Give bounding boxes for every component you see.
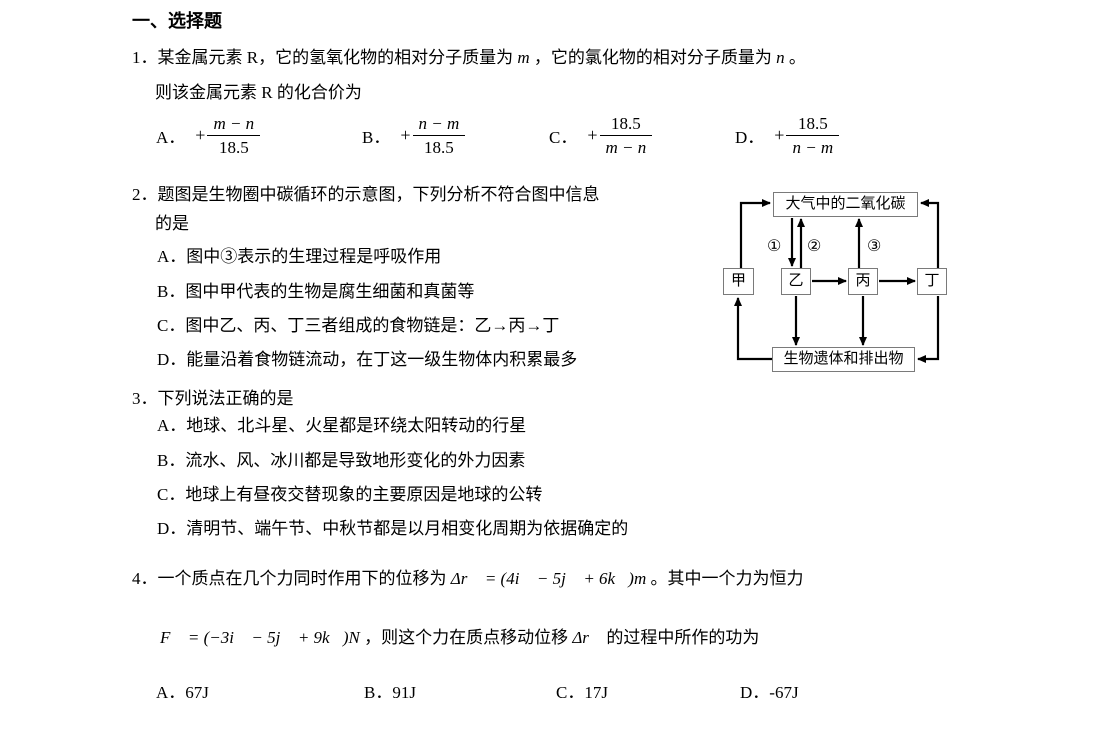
question-4-line-1: 4．一个质点在几个力同时作用下的位移为 Δr⃗ = (4i⃗ − 5j⃗ + 6… bbox=[132, 566, 804, 591]
diagram-box-ding: 丁 bbox=[917, 268, 947, 295]
option-label: A． bbox=[156, 123, 185, 148]
fraction-numerator: m − n bbox=[207, 112, 260, 136]
question-4-text-3: ，则这个力在质点移动位移 bbox=[360, 628, 573, 647]
fraction: 18.5 n − m bbox=[786, 112, 839, 159]
question-2-line-1: 2．题图是生物圈中碳循环的示意图，下列分析不符合图中信息 bbox=[132, 182, 600, 207]
q1-option-d: D． + 18.5 n − m bbox=[735, 112, 839, 159]
question-4-text-4: 的过程中所作的功为 bbox=[602, 628, 759, 647]
q4-option-d: D．-67J bbox=[740, 680, 799, 705]
var-m: m bbox=[517, 48, 529, 67]
q3-option-c: C．地球上有昼夜交替现象的主要原因是地球的公转 bbox=[157, 482, 542, 507]
diagram-label-3: ③ bbox=[867, 239, 881, 255]
displacement-formula: Δr⃗ = (4i⃗ − 5j⃗ + 6k⃗)m bbox=[451, 569, 647, 588]
question-1-line-2: 则该金属元素 R 的化合价为 bbox=[155, 80, 362, 105]
question-4-text-2: 。其中一个力为恒力 bbox=[646, 569, 803, 588]
question-3-stem: 3．下列说法正确的是 bbox=[132, 386, 294, 411]
fraction-numerator: 18.5 bbox=[600, 112, 653, 136]
q1-option-a: A． + m − n 18.5 bbox=[156, 112, 260, 159]
plus-sign: + bbox=[774, 125, 784, 146]
q4-option-b: B．91J bbox=[364, 680, 416, 705]
question-1-text-3: 。 bbox=[785, 48, 806, 67]
question-4-text: 一个质点在几个力同时作用下的位移为 bbox=[158, 569, 451, 588]
var-n: n bbox=[776, 48, 785, 67]
q3-option-b: B．流水、风、冰川都是导致地形变化的外力因素 bbox=[157, 448, 525, 473]
fraction: 18.5 m − n bbox=[600, 112, 653, 159]
question-1-text: 某金属元素 R，它的氢氧化物的相对分子质量为 bbox=[158, 48, 518, 67]
q2-option-b: B．图中甲代表的生物是腐生细菌和真菌等 bbox=[157, 279, 474, 304]
question-2-text: 题图是生物圈中碳循环的示意图，下列分析不符合图中信息 bbox=[158, 185, 600, 204]
plus-sign: + bbox=[195, 125, 205, 146]
section-heading: 一、选择题 bbox=[132, 9, 222, 34]
question-3-text: 下列说法正确的是 bbox=[158, 389, 294, 408]
q3-option-d: D．清明节、端午节、中秋节都是以月相变化周期为依据确定的 bbox=[157, 516, 628, 541]
question-1-text-2: ，它的氯化物的相对分子质量为 bbox=[530, 48, 777, 67]
question-2-line-2: 的是 bbox=[155, 211, 189, 236]
fraction-denominator: 18.5 bbox=[413, 136, 466, 159]
diagram-label-1: ① bbox=[767, 239, 781, 255]
q3-option-a: A．地球、北斗星、火星都是环绕太阳转动的行星 bbox=[157, 413, 526, 438]
displacement-symbol: Δr⃗ bbox=[572, 628, 602, 647]
q1-option-c: C． + 18.5 m − n bbox=[549, 112, 652, 159]
diagram-label-2: ② bbox=[807, 239, 821, 255]
q1-option-b: B． + n − m 18.5 bbox=[362, 112, 465, 159]
diagram-box-yi: 乙 bbox=[781, 268, 811, 295]
option-label: B． bbox=[362, 123, 390, 148]
question-4-number: 4． bbox=[132, 569, 158, 588]
fraction-denominator: n − m bbox=[786, 136, 839, 159]
plus-sign: + bbox=[587, 125, 597, 146]
question-4-line-2: F⃗ = (−3i⃗ − 5j⃗ + 9k⃗)N ，则这个力在质点移动位移 Δr… bbox=[160, 625, 759, 650]
question-2-number: 2． bbox=[132, 185, 158, 204]
q2-option-c: C．图中乙、丙、丁三者组成的食物链是：乙→丙→丁 bbox=[157, 313, 559, 338]
diagram-box-atmospheric-co2: 大气中的二氧化碳 bbox=[773, 192, 918, 217]
q4-option-c: C．17J bbox=[556, 680, 608, 705]
q2-option-a: A．图中③表示的生理过程是呼吸作用 bbox=[157, 244, 441, 269]
fraction-denominator: m − n bbox=[600, 136, 653, 159]
exam-page: 一、选择题 1．某金属元素 R，它的氢氧化物的相对分子质量为 m ，它的氯化物的… bbox=[0, 0, 1119, 742]
q4-option-a: A．67J bbox=[156, 680, 209, 705]
diagram-box-jia: 甲 bbox=[723, 268, 754, 295]
question-1-line-1: 1．某金属元素 R，它的氢氧化物的相对分子质量为 m ，它的氯化物的相对分子质量… bbox=[132, 45, 806, 70]
fraction: n − m 18.5 bbox=[413, 112, 466, 159]
q2-option-d: D．能量沿着食物链流动，在丁这一级生物体内积累最多 bbox=[157, 347, 577, 372]
option-label: C． bbox=[549, 123, 577, 148]
fraction-numerator: n − m bbox=[413, 112, 466, 136]
question-3-number: 3． bbox=[132, 389, 158, 408]
option-label: D． bbox=[735, 123, 764, 148]
carbon-cycle-diagram: 大气中的二氧化碳 甲 乙 丙 丁 生物遗体和排出物 ① ② ③ bbox=[715, 185, 1119, 380]
diagram-box-remains: 生物遗体和排出物 bbox=[772, 347, 915, 372]
force-formula: F⃗ = (−3i⃗ − 5j⃗ + 9k⃗)N bbox=[160, 628, 360, 647]
plus-sign: + bbox=[400, 125, 410, 146]
fraction: m − n 18.5 bbox=[207, 112, 260, 159]
fraction-denominator: 18.5 bbox=[207, 136, 260, 159]
diagram-box-bing: 丙 bbox=[848, 268, 878, 295]
fraction-numerator: 18.5 bbox=[786, 112, 839, 136]
question-1-number: 1． bbox=[132, 48, 158, 67]
